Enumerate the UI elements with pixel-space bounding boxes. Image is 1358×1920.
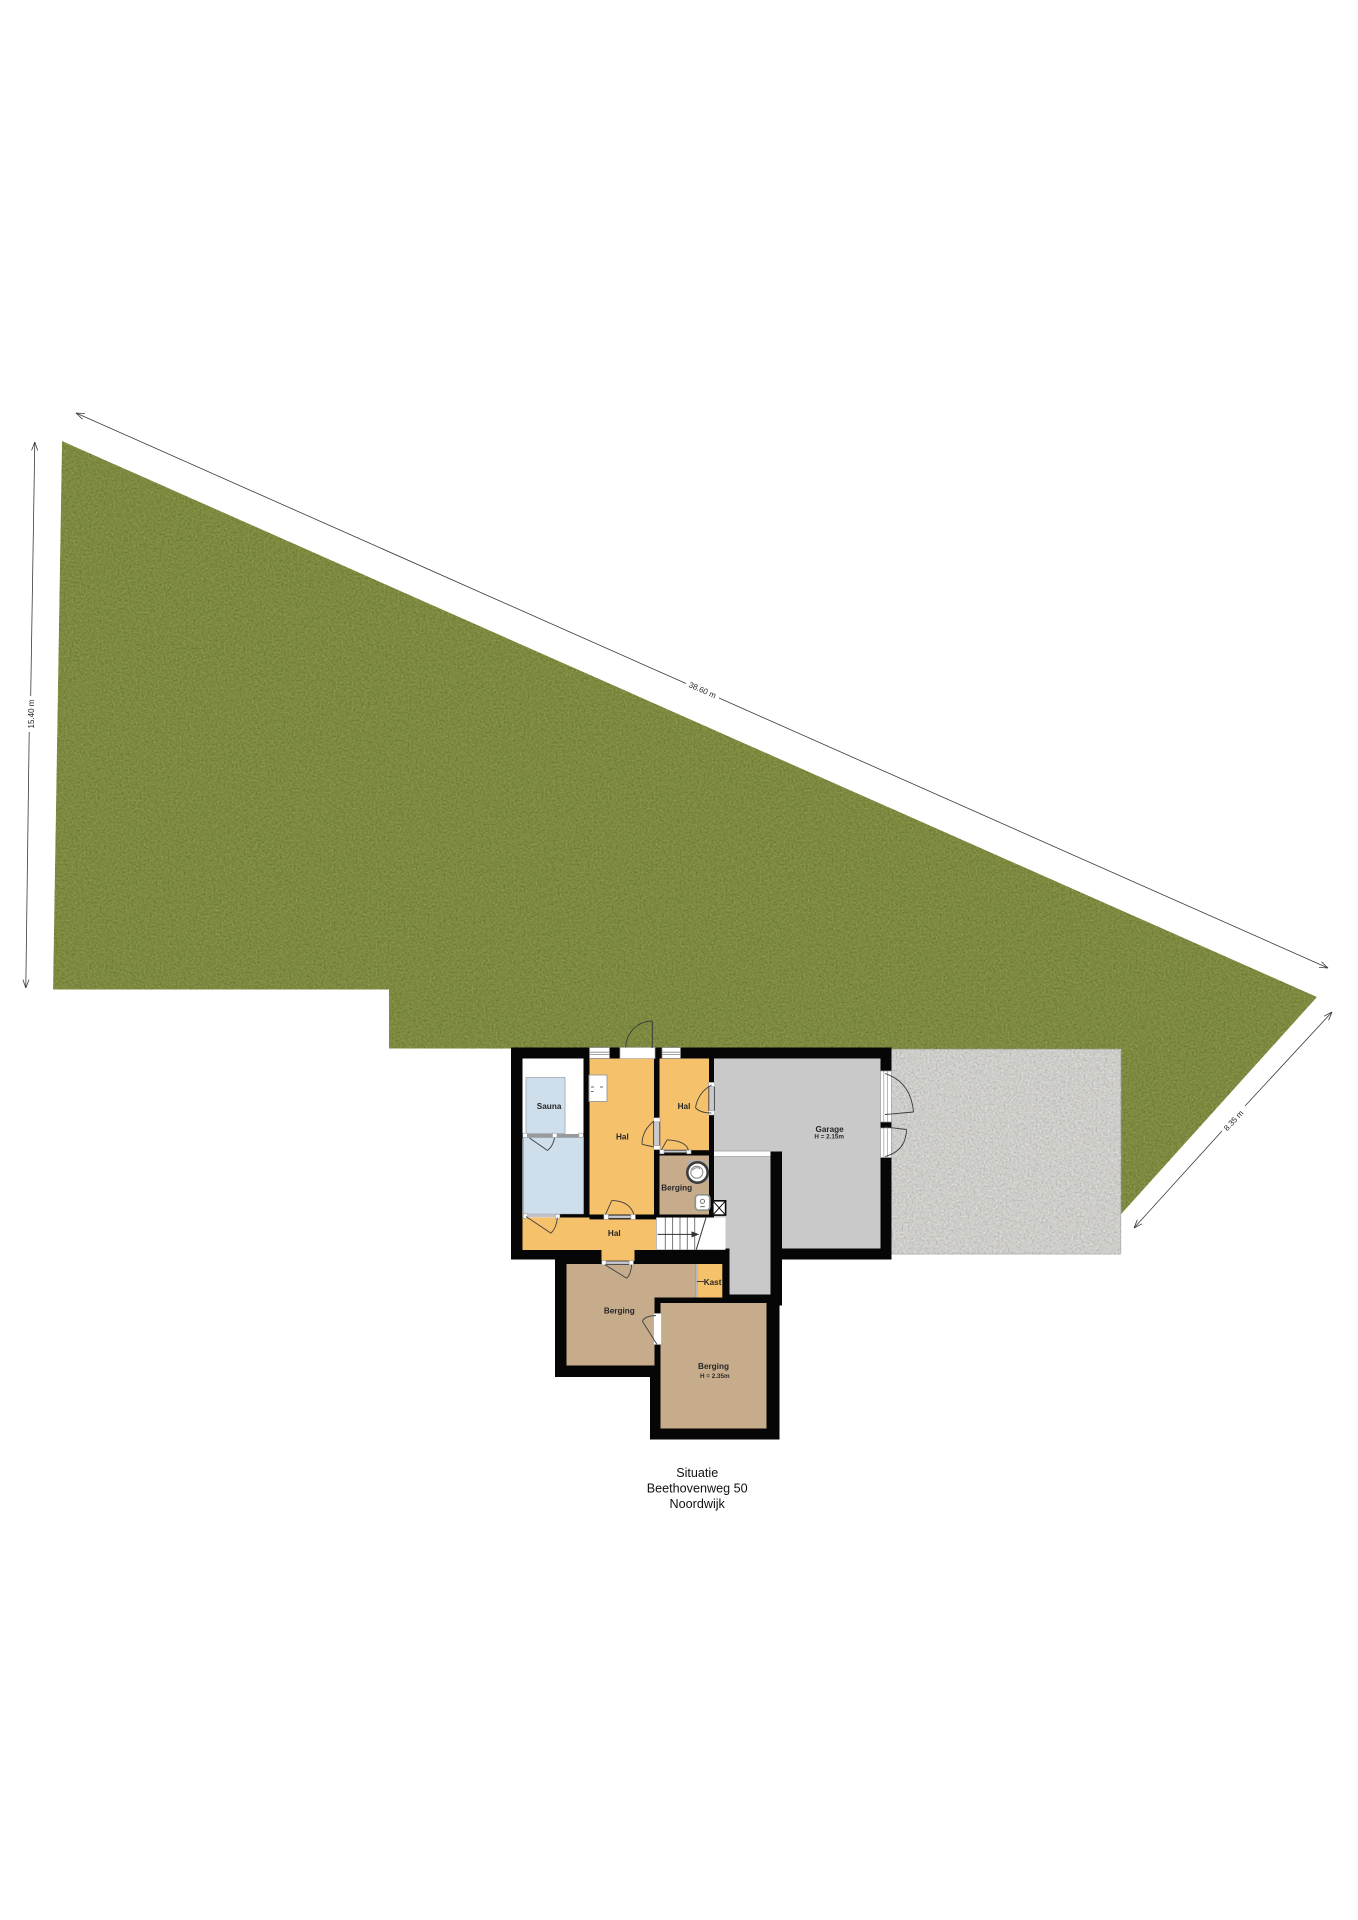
svg-text:8.35 m: 8.35 m <box>1222 1108 1245 1132</box>
svg-text:Beethovenweg 50: Beethovenweg 50 <box>647 1482 748 1496</box>
svg-text:Situatie: Situatie <box>676 1466 718 1480</box>
svg-text:Hal: Hal <box>616 1132 629 1141</box>
svg-text:Hal: Hal <box>678 1102 691 1111</box>
svg-text:Berging: Berging <box>698 1362 729 1371</box>
svg-text:Berging: Berging <box>661 1183 692 1192</box>
svg-text:Kast: Kast <box>704 1278 722 1287</box>
svg-text:Sauna: Sauna <box>537 1102 562 1111</box>
svg-text:H = 2.15m: H = 2.15m <box>814 1133 844 1140</box>
svg-text:Noordwijk: Noordwijk <box>670 1497 726 1511</box>
svg-text:38.60 m: 38.60 m <box>687 680 717 700</box>
svg-text:H = 2.35m: H = 2.35m <box>700 1373 730 1380</box>
svg-text:Hal: Hal <box>608 1229 621 1238</box>
svg-text:Berging: Berging <box>604 1306 635 1315</box>
svg-text:15.40 m: 15.40 m <box>27 699 36 728</box>
